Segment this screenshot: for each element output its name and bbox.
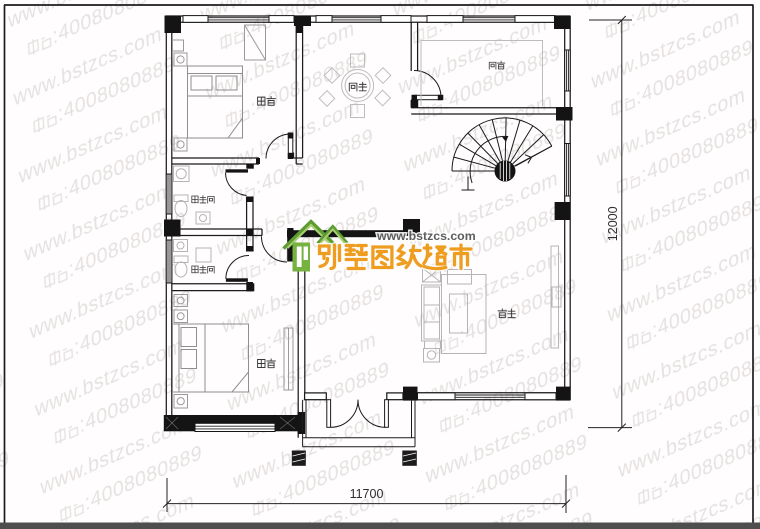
svg-text:11700: 11700 [350,487,384,501]
svg-text:www.bstzcs.com: www.bstzcs.com [376,229,476,243]
svg-text:12000: 12000 [606,206,620,241]
